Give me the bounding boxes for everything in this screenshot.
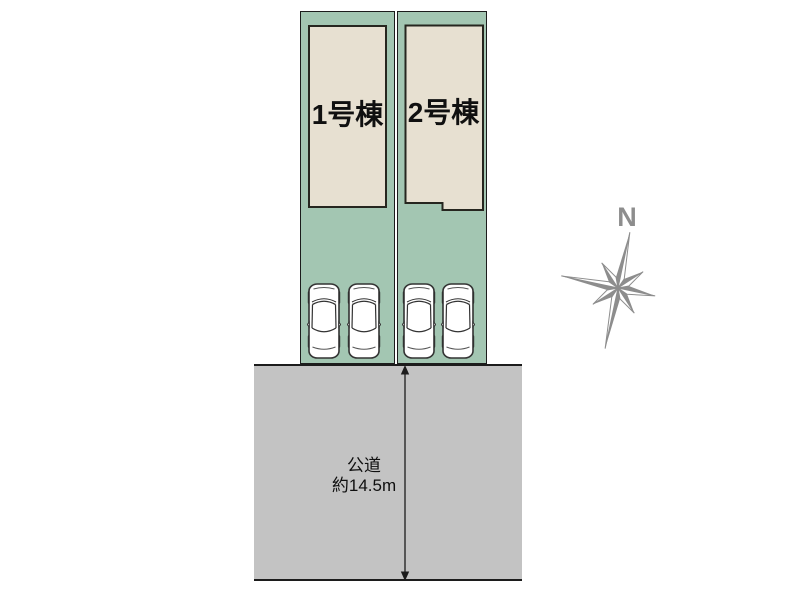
north-label: N (617, 202, 637, 232)
compass-rose-icon: N (552, 196, 684, 354)
car-icon (402, 282, 436, 360)
building-2-label: 2号棟 (403, 91, 484, 131)
site-plan-canvas: 公道 約14.5m 1号棟 2号棟 (0, 0, 800, 601)
road-width-dimension-arrow (397, 364, 413, 582)
building-1-label: 1号棟 (306, 93, 389, 133)
car-icon (307, 282, 341, 360)
car-icon (441, 282, 475, 360)
car-icon (347, 282, 381, 360)
